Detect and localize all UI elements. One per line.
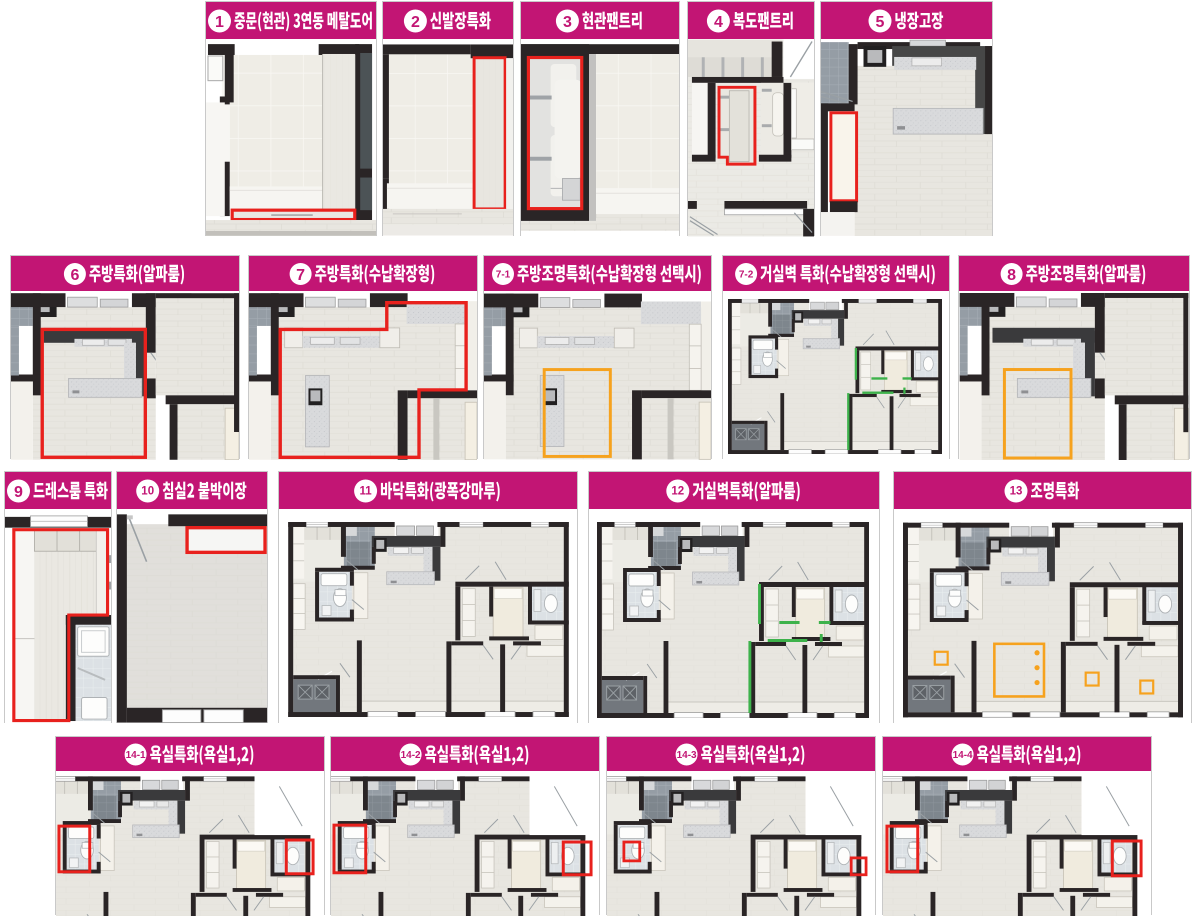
svg-text:6: 6 xyxy=(70,267,79,284)
svg-text:12: 12 xyxy=(671,486,684,498)
svg-text:11: 11 xyxy=(360,486,373,498)
svg-text:7-2: 7-2 xyxy=(739,270,754,281)
svg-text:14-4: 14-4 xyxy=(953,750,973,761)
svg-text:2: 2 xyxy=(411,14,420,31)
svg-text:5: 5 xyxy=(876,14,885,31)
svg-text:7: 7 xyxy=(296,267,305,284)
svg-text:8: 8 xyxy=(1007,267,1016,284)
svg-text:1: 1 xyxy=(215,14,224,31)
svg-text:14-2: 14-2 xyxy=(401,750,421,761)
svg-text:14-1: 14-1 xyxy=(126,750,146,761)
svg-text:14-3: 14-3 xyxy=(677,750,697,761)
svg-text:4: 4 xyxy=(714,14,723,31)
svg-text:7-1: 7-1 xyxy=(496,270,511,281)
svg-text:13: 13 xyxy=(1010,486,1023,498)
svg-text:10: 10 xyxy=(141,486,154,498)
svg-text:3: 3 xyxy=(563,14,572,31)
svg-text:9: 9 xyxy=(14,484,23,501)
